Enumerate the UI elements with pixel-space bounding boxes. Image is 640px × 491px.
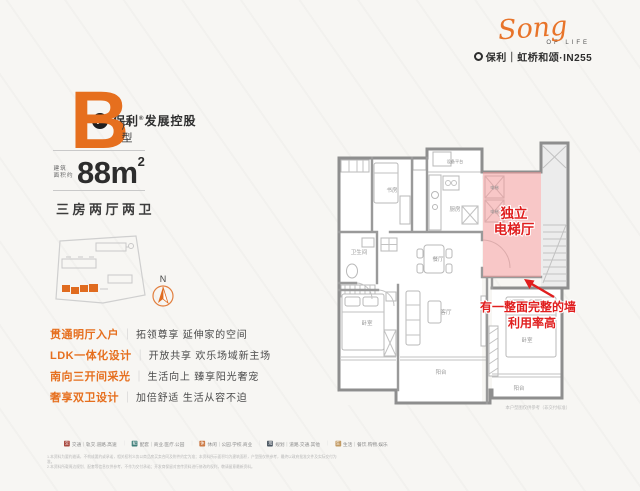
area-superscript: 2 [138,154,145,169]
neighbor-core-area [541,143,568,288]
feature-separator: ｜ [135,347,146,363]
disclaimer-line1: 1.本资料为要约邀请，不构成要约或承诺，相关权利义务以商品房买卖合同及附件约定为… [47,455,338,465]
feature-list: 贯通明厅入户 ｜ 拓领尊享 延伸家的空间 LDK一体化设计 ｜ 开放共享 欢乐场… [50,327,271,411]
site-buildings [62,243,134,289]
disclaimer-line2: 2.本资料所载周边规划、配套等信息仅供参考，不作为交付承诺；开发商保留对宣传资料… [47,465,338,470]
compass-needle-dark [158,287,163,303]
room-label-equipment: 设备平台 [447,158,464,165]
site-plan-sketch [48,233,152,313]
feature-desc: 开放共享 欢乐场域新主场 [149,347,271,362]
divider-bottom [53,190,145,191]
room-label-elevator-bottom: 电梯 [490,208,498,215]
feature-title: 南向三开间采光 [50,368,131,384]
legend-amenity-icon: 配 [132,441,138,447]
legend-item: 规 规划｜道路.交通.其他 [267,440,320,447]
legend-label: 规划｜道路.交通.其他 [275,440,320,447]
area-prefix-line1: 建筑 [54,166,74,173]
room-label-elevator-top: 电梯 [490,184,498,191]
legend-label: 交通｜轨交.道路.高速 [72,440,117,447]
area-prefix: 建筑 面积约 [54,166,74,179]
feature-title: LDK一体化设计 [50,347,132,363]
legend-divider: ｜ [257,440,262,447]
feature-separator: ｜ [122,326,133,342]
room-label-study: 书房 [386,186,398,194]
feature-desc: 拓领尊享 延伸家的空间 [136,326,248,341]
legend-life-icon: 生 [335,441,341,447]
area-value: 88m [77,155,138,190]
room-label-bathroom: 卫生间 [351,248,368,256]
site-highlight-building [62,284,98,294]
feature-item: 奢享双卫设计 ｜ 加倍舒适 生活从容不迫 [50,390,271,403]
feature-item: 南向三开间采光 ｜ 生活向上 臻享阳光奢宠 [50,369,271,382]
legend-row: 交 交通｜轨交.道路.高速 ｜ 配 配套｜商业.医疗.公园 ｜ 休 休闲｜公园.… [64,440,352,447]
north-compass-icon: N [150,272,176,310]
room-label-kitchen: 厨房 [449,205,461,213]
brand-project-name: 保利｜虹桥和颂·IN255 [486,49,593,64]
legend-label: 配套｜商业.医疗.公园 [140,440,185,447]
annotation-wall-note-line1: 有一整面完整的墙 [480,299,576,314]
feature-desc: 加倍舒适 生活从容不迫 [136,389,248,404]
unit-layout-text: 三房两厅两卫 [56,199,155,218]
site-boundary [56,236,145,303]
feature-item: LDK一体化设计 ｜ 开放共享 欢乐场域新主场 [50,348,271,361]
room-label-bedroom-left: 卧室 [361,319,373,327]
brand-script-logo: Song [497,14,568,45]
compass-needle-light [163,287,168,303]
room-label-living: 客厅 [440,308,452,316]
legend-item: 交 交通｜轨交.道路.高速 [64,440,117,447]
compass-n-label: N [160,274,167,284]
area-prefix-line2: 面积约 [54,173,74,180]
area-value-wrap: 88m2 [77,155,145,191]
feature-title: 贯通明厅入户 [50,326,119,342]
developer-name-part2: 发展控股 [144,114,196,128]
legend-leisure-icon: 休 [200,441,206,447]
bg-patch [336,392,394,405]
legend-item: 生 生活｜餐饮.购物.娱乐 [335,440,388,447]
legend-divider: ｜ [325,440,330,447]
room-label-balcony-right: 阳台 [513,384,525,392]
divider-top [53,150,145,151]
brand-roundel-icon [474,52,483,61]
unit-type-label: 户型 [119,119,132,145]
legend-planning-icon: 规 [267,441,273,447]
brand-project-line: 保利｜虹桥和颂·IN255 [458,49,608,64]
annotation-elevator-hall-line2: 电梯厅 [494,221,535,237]
annotation-wall-note-line2: 利用率高 [508,315,556,330]
floorplan-caption: 本户型图仅供参考（非交付标准） [506,404,570,411]
brand-block: Song OF LIFE 保利｜虹桥和颂·IN255 [458,16,608,64]
feature-title: 奢享双卫设计 [50,389,119,405]
legend-item: 配 配套｜商业.医疗.公园 [132,440,185,447]
feature-separator: ｜ [122,389,133,405]
legend-transport-icon: 交 [64,441,70,447]
annotation-elevator-hall-line1: 独立 [501,205,529,221]
feature-separator: ｜ [134,368,145,384]
feature-desc: 生活向上 臻享阳光奢宠 [148,368,260,383]
legend-label: 休闲｜公园.学校.商业 [207,440,252,447]
legend-divider: ｜ [189,440,194,447]
legend-label: 生活｜餐饮.购物.娱乐 [343,440,388,447]
room-label-balcony-center: 阳台 [435,368,447,376]
room-label-bedroom-right: 卧室 [521,336,533,344]
feature-item: 贯通明厅入户 ｜ 拓领尊享 延伸家的空间 [50,327,271,340]
legend-divider: ｜ [122,440,127,447]
floor-plan: 书房 设备平台 厨房 卫生间 餐厅 客厅 阳台 卧室 卧室 阳台 电梯 电梯 独… [330,138,578,413]
room-label-dining: 餐厅 [432,255,444,263]
legend-item: 休 休闲｜公园.学校.商业 [200,440,253,447]
disclaimer: 1.本资料为要约邀请，不构成要约或承诺，相关权利义务以商品房买卖合同及附件约定为… [47,455,338,470]
area-row: 建筑 面积约 88m2 [53,155,145,191]
flyer-page: P 保利®发展控股 Song OF LIFE 保利｜虹桥和颂·IN255 B 户… [0,0,640,491]
